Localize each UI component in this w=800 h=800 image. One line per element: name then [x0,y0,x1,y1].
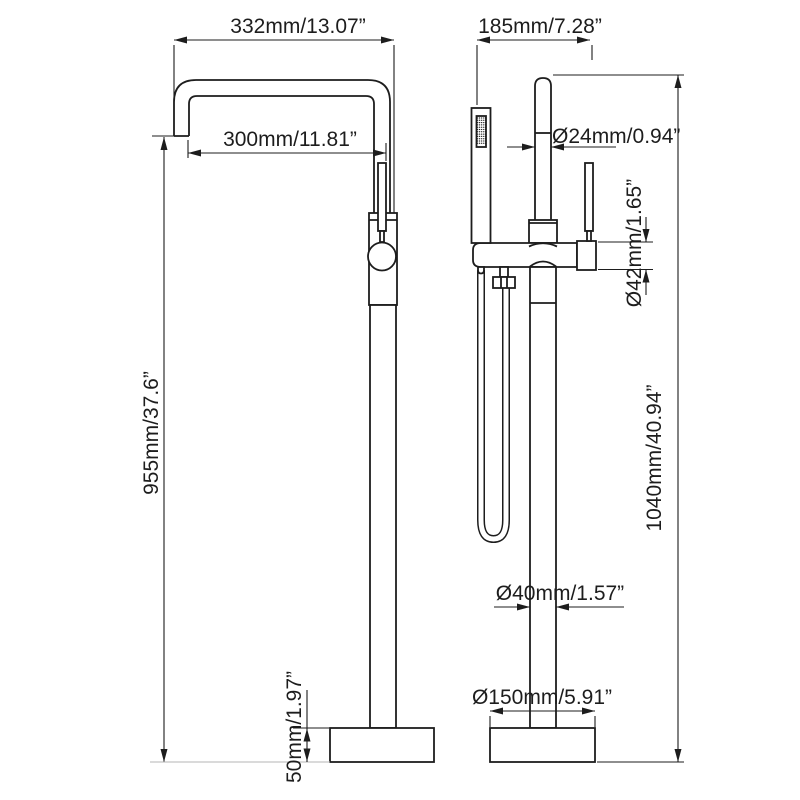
dim-base-diameter-label: Ø150mm/5.91” [472,686,612,709]
dim-column-diameter-label: Ø40mm/1.57” [496,582,624,605]
dim-body-diameter: Ø42mm/1.65” [598,179,653,307]
hand-shower-tip [478,267,484,274]
dim-side-height: 955mm/37.6” [140,136,174,762]
front-view [472,78,597,762]
dim-pipe-diameter-label: Ø24mm/0.94” [552,125,680,148]
spout-pipe-front [535,78,551,222]
dim-spout-reach-label: 300mm/11.81” [223,128,357,151]
dim-spout-width-label: 332mm/13.07” [230,15,365,38]
shower-hose-outer [481,270,506,539]
dim-base-height: 50mm/1.97” [150,671,330,783]
riser-column-side [370,305,396,728]
base-plate-front [490,728,595,762]
dim-base-height-label: 50mm/1.97” [283,671,306,783]
hand-shower [472,108,491,243]
dim-side-height-label: 955mm/37.6” [140,371,163,495]
ball-joint [368,243,396,271]
lever-stem-side [380,231,384,242]
dim-column-diameter: Ø40mm/1.57” [494,582,624,611]
handle-hub [577,241,596,270]
crossbar-body [473,243,577,267]
faucet-dimension-drawing: 332mm/13.07” 300mm/11.81” 955mm/37.6” 50… [0,0,800,800]
handle-stem-front [587,231,591,241]
technical-drawing-page: 332mm/13.07” 300mm/11.81” 955mm/37.6” 50… [0,0,800,800]
mixer-lever-side [378,163,386,231]
base-plate-side [330,728,434,762]
dim-front-height-label: 1040mm/40.94” [643,384,666,531]
dim-top-width-label: 185mm/7.28” [478,15,602,38]
dim-body-diameter-label: Ø42mm/1.65” [623,179,646,307]
hose-stub [500,267,508,277]
dim-spout-reach: 300mm/11.81” [188,128,386,161]
riser-column-front [530,267,556,728]
dim-front-height: 1040mm/40.94” [553,75,684,762]
hose-nut [493,277,515,288]
handle-lever-front [585,163,593,231]
dim-spout-width: 332mm/13.07” [174,15,394,213]
dim-pipe-diameter: Ø24mm/0.94” [507,125,680,151]
side-view [174,80,434,762]
